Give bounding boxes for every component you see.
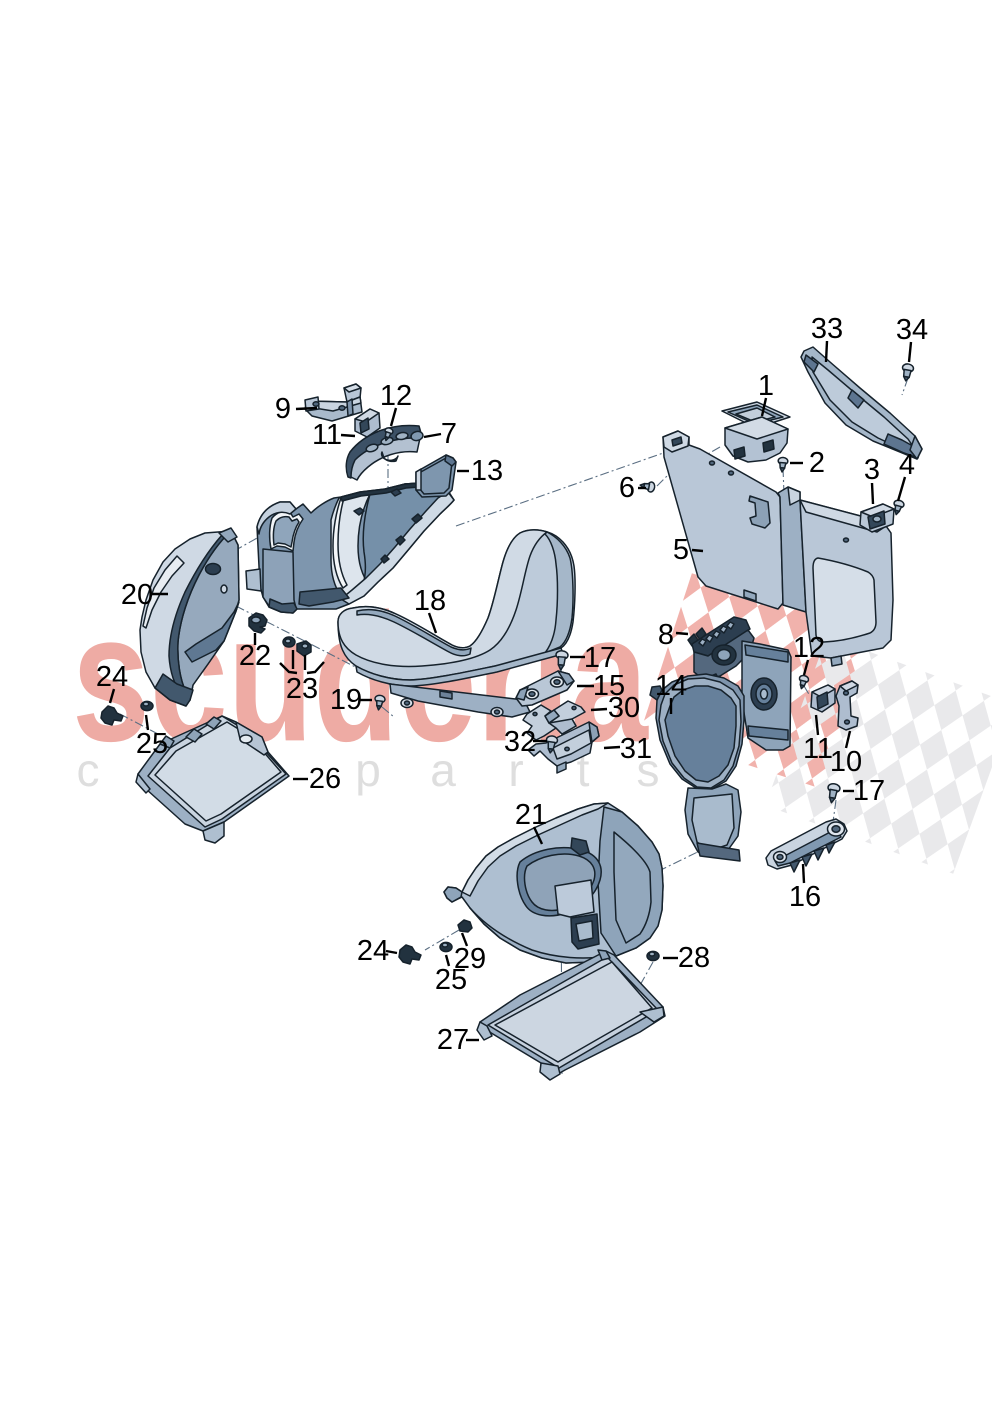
- svg-text:11: 11: [803, 733, 833, 765]
- svg-text:12: 12: [380, 380, 412, 412]
- svg-text:25: 25: [136, 728, 168, 760]
- svg-text:24: 24: [357, 935, 389, 967]
- svg-text:20: 20: [121, 579, 153, 611]
- svg-text:a: a: [430, 744, 456, 796]
- svg-text:30: 30: [608, 692, 640, 724]
- svg-text:23: 23: [286, 673, 318, 705]
- svg-text:8: 8: [658, 619, 674, 651]
- svg-text:31: 31: [620, 733, 652, 765]
- svg-text:9: 9: [275, 393, 291, 425]
- svg-text:25: 25: [435, 964, 467, 996]
- svg-text:16: 16: [789, 881, 821, 913]
- svg-text:34: 34: [896, 314, 928, 346]
- svg-text:p: p: [355, 744, 381, 796]
- svg-text:1: 1: [758, 370, 774, 402]
- svg-text:22: 22: [239, 640, 271, 672]
- svg-text:12: 12: [793, 632, 825, 664]
- svg-text:7: 7: [441, 418, 457, 450]
- svg-text:21: 21: [515, 799, 547, 831]
- svg-text:4: 4: [899, 449, 915, 481]
- svg-text:24: 24: [96, 661, 128, 693]
- svg-text:14: 14: [655, 670, 687, 702]
- svg-text:6: 6: [619, 472, 635, 504]
- svg-text:26: 26: [309, 763, 341, 795]
- svg-text:3: 3: [864, 454, 880, 486]
- svg-text:10: 10: [830, 746, 862, 778]
- svg-text:33: 33: [811, 313, 843, 345]
- svg-text:17: 17: [853, 775, 885, 807]
- svg-text:32: 32: [504, 726, 536, 758]
- svg-text:19: 19: [330, 684, 362, 716]
- svg-text:11: 11: [312, 419, 342, 451]
- svg-text:2: 2: [809, 447, 825, 479]
- svg-text:27: 27: [437, 1024, 469, 1056]
- svg-text:18: 18: [414, 585, 446, 617]
- svg-text:28: 28: [678, 942, 710, 974]
- svg-text:13: 13: [471, 455, 503, 487]
- svg-text:c: c: [77, 744, 100, 796]
- svg-text:5: 5: [673, 534, 689, 566]
